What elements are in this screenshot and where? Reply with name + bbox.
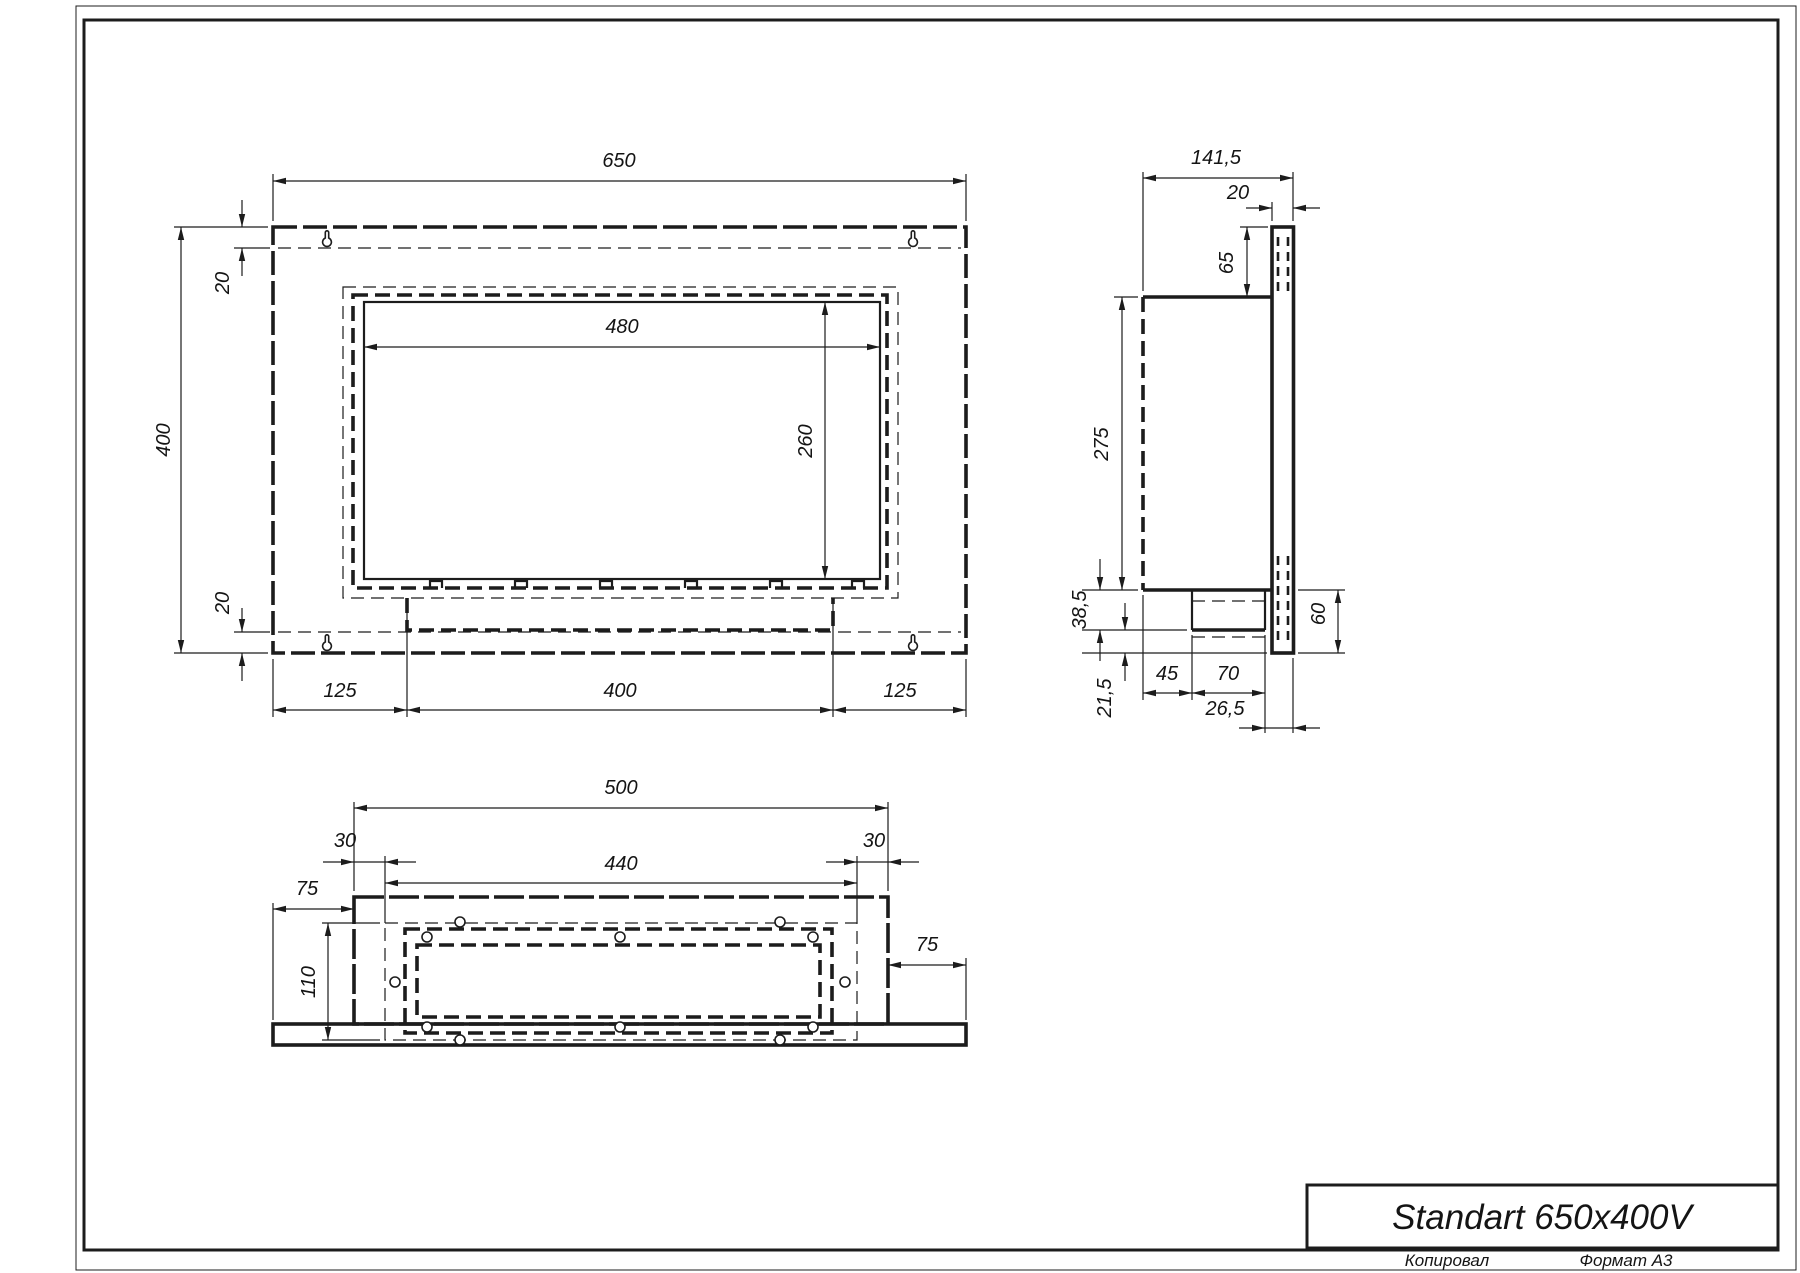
hole	[455, 1035, 465, 1045]
dim-side-top-offset: 65	[1216, 251, 1238, 274]
dim-bottom-left-overhang: 75	[296, 878, 319, 900]
side-view: 141,5 20 65 275 38,5 21,5 45 70 26,5 60	[1069, 147, 1345, 733]
drawing-title: Standart 650x400V	[1392, 1198, 1695, 1237]
dim-front-overall-width: 650	[602, 150, 635, 172]
copied-label: Копировал	[1405, 1251, 1490, 1270]
side-flange	[1272, 227, 1294, 653]
side-burner-walls	[1192, 590, 1265, 630]
drawing-sheet: Standart 650x400V Копировал Формат А3 65…	[0, 0, 1800, 1273]
sheet-frame: Standart 650x400V Копировал Формат А3	[76, 6, 1796, 1270]
hole	[808, 932, 818, 942]
format-label: Формат А3	[1579, 1251, 1673, 1270]
dim-side-flange-extension: 60	[1308, 603, 1330, 625]
hole	[840, 977, 850, 987]
hole	[775, 1035, 785, 1045]
front-burner-hidden	[407, 598, 833, 630]
dim-bottom-cutout-width: 440	[604, 853, 637, 875]
hole	[455, 917, 465, 927]
dim-front-burner-width: 400	[603, 680, 636, 702]
front-outer-frame	[273, 227, 966, 653]
bottom-burner-inner-hidden	[417, 945, 820, 1017]
dim-side-burner-depth: 70	[1217, 663, 1239, 685]
keyhole-slot-icon	[323, 231, 332, 247]
drawing-border	[84, 20, 1778, 1250]
dim-side-flange-thickness: 20	[1226, 182, 1249, 204]
extension-lines	[354, 802, 888, 891]
front-view: 650 400 20 20 480 260 125 400 125	[153, 150, 966, 717]
hole	[615, 932, 625, 942]
hole	[775, 917, 785, 927]
dim-bottom-right-inset: 30	[863, 830, 885, 852]
hole	[808, 1022, 818, 1032]
dim-bottom-right-overhang: 75	[916, 934, 939, 956]
bottom-body	[354, 897, 888, 1024]
dim-bottom-cutout-depth: 110	[298, 966, 320, 998]
dim-front-opening-width: 480	[605, 316, 638, 338]
side-keyhole-slots-hidden	[1278, 237, 1288, 642]
dim-side-bottom-gap: 21,5	[1094, 678, 1116, 719]
dim-front-opening-height: 260	[795, 424, 817, 458]
dim-front-bottom-left: 125	[323, 680, 357, 702]
dim-bottom-body-width: 500	[604, 777, 637, 799]
dim-side-front-offset: 45	[1156, 663, 1179, 685]
dim-side-burner-drop: 38,5	[1069, 590, 1091, 630]
hole	[422, 1022, 432, 1032]
dim-front-bottom-offset: 20	[212, 592, 234, 615]
dim-side-body-height: 275	[1091, 426, 1113, 461]
keyhole-slot-icon	[323, 635, 332, 651]
hole	[390, 977, 400, 987]
dim-bottom-left-inset: 30	[334, 830, 356, 852]
cad-canvas: Standart 650x400V Копировал Формат А3 65…	[0, 0, 1800, 1273]
paper-edge	[76, 6, 1796, 1270]
dim-side-rear-offset: 26,5	[1205, 698, 1246, 720]
dim-side-overall-depth: 141,5	[1191, 147, 1242, 169]
dim-front-overall-height: 400	[153, 423, 175, 456]
keyhole-slot-icon	[909, 231, 918, 247]
hole	[615, 1022, 625, 1032]
dim-front-top-offset: 20	[212, 272, 234, 295]
dim-front-bottom-right: 125	[883, 680, 917, 702]
hole	[422, 932, 432, 942]
keyhole-slot-icon	[909, 635, 918, 651]
bottom-view: 500 30 30 440 75 110 75	[273, 777, 966, 1045]
